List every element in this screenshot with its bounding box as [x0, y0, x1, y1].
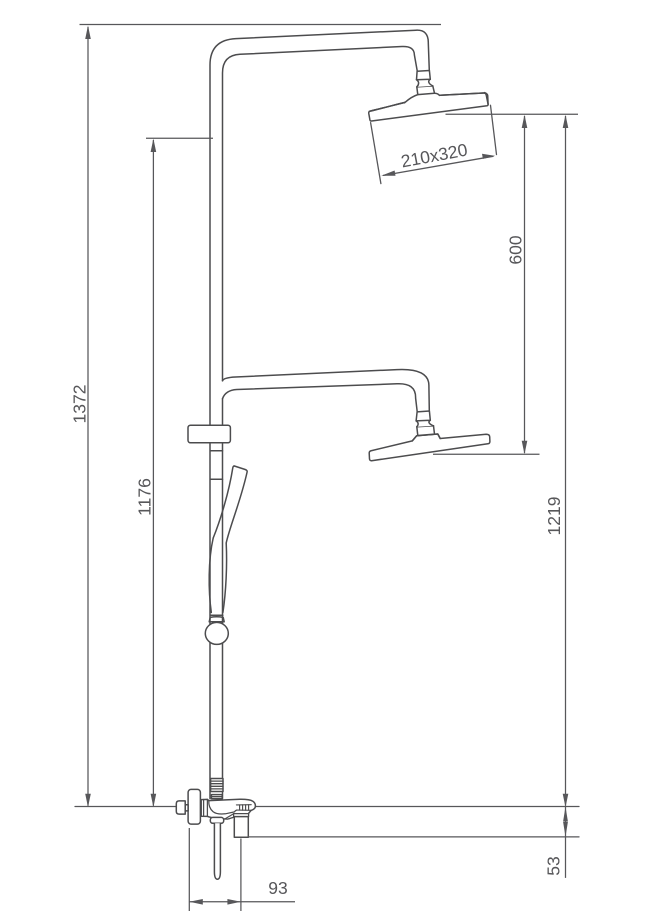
svg-text:1219: 1219 [544, 497, 564, 536]
svg-text:53: 53 [544, 856, 564, 875]
svg-text:1176: 1176 [135, 478, 155, 516]
svg-text:1372: 1372 [69, 385, 89, 424]
svg-text:93: 93 [268, 878, 287, 898]
svg-text:600: 600 [506, 235, 526, 264]
